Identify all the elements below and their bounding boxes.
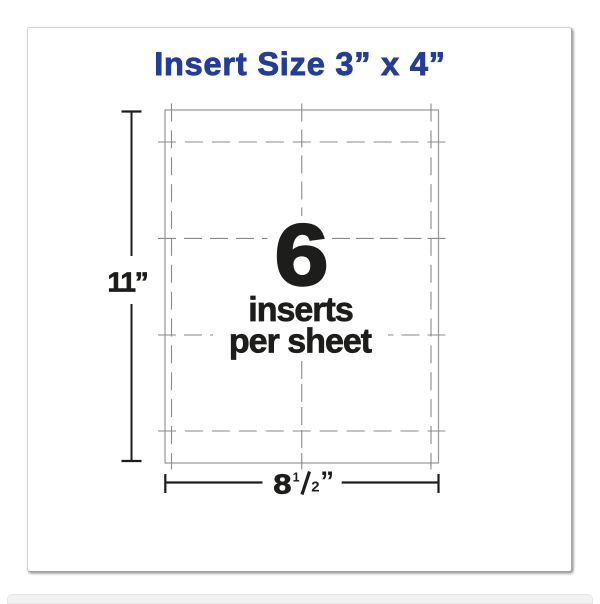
svg-text:8: 8 [273,470,291,500]
svg-text:1: 1 [293,470,300,484]
svg-text:2: 2 [311,479,319,496]
svg-text:6: 6 [275,207,329,303]
svg-text:per sheet: per sheet [229,323,372,361]
svg-text:”: ” [320,466,334,497]
svg-text:Insert Size 3” x 4”: Insert Size 3” x 4” [154,46,446,82]
svg-text:11”: 11” [108,267,148,298]
